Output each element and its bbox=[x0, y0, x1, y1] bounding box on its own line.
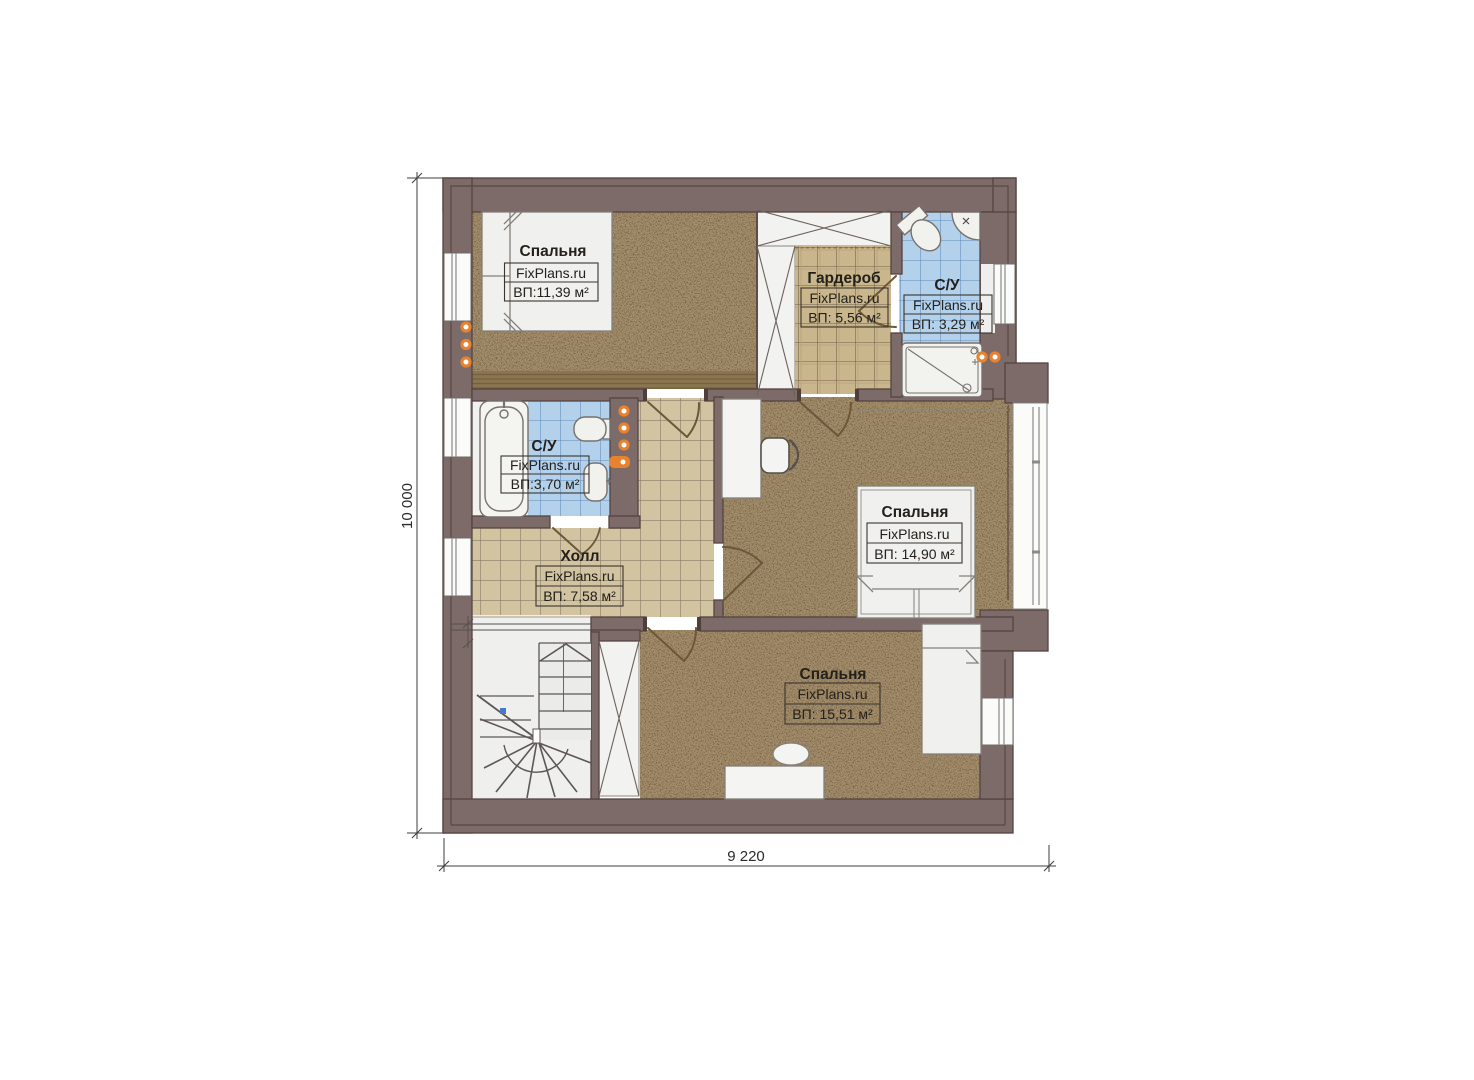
svg-text:ВП: 5,56 м²: ВП: 5,56 м² bbox=[808, 310, 881, 326]
svg-text:ВП: 3,29 м²: ВП: 3,29 м² bbox=[912, 316, 985, 332]
svg-text:ВП: 14,90 м²: ВП: 14,90 м² bbox=[874, 546, 955, 562]
svg-text:Спальня: Спальня bbox=[520, 243, 587, 260]
svg-text:FixPlans.ru: FixPlans.ru bbox=[797, 686, 867, 702]
svg-text:ВП:3,70 м²: ВП:3,70 м² bbox=[511, 476, 580, 492]
svg-text:С/У: С/У bbox=[934, 277, 960, 294]
svg-text:10 000: 10 000 bbox=[399, 483, 416, 529]
svg-text:9 220: 9 220 bbox=[727, 848, 765, 865]
svg-text:FixPlans.ru: FixPlans.ru bbox=[913, 297, 983, 313]
svg-text:Спальня: Спальня bbox=[882, 504, 949, 521]
svg-text:Холл: Холл bbox=[561, 548, 600, 565]
svg-text:ВП: 7,58 м²: ВП: 7,58 м² bbox=[543, 588, 616, 604]
svg-text:FixPlans.ru: FixPlans.ru bbox=[516, 265, 586, 281]
svg-text:FixPlans.ru: FixPlans.ru bbox=[544, 568, 614, 584]
svg-text:ВП:11,39 м²: ВП:11,39 м² bbox=[513, 284, 589, 300]
svg-text:ВП: 15,51 м²: ВП: 15,51 м² bbox=[792, 706, 873, 722]
svg-text:Спальня: Спальня bbox=[800, 666, 867, 683]
svg-text:FixPlans.ru: FixPlans.ru bbox=[510, 457, 580, 473]
svg-text:Гардероб: Гардероб bbox=[807, 270, 880, 287]
svg-text:FixPlans.ru: FixPlans.ru bbox=[809, 290, 879, 306]
svg-text:С/У: С/У bbox=[531, 438, 557, 455]
svg-text:FixPlans.ru: FixPlans.ru bbox=[879, 526, 949, 542]
